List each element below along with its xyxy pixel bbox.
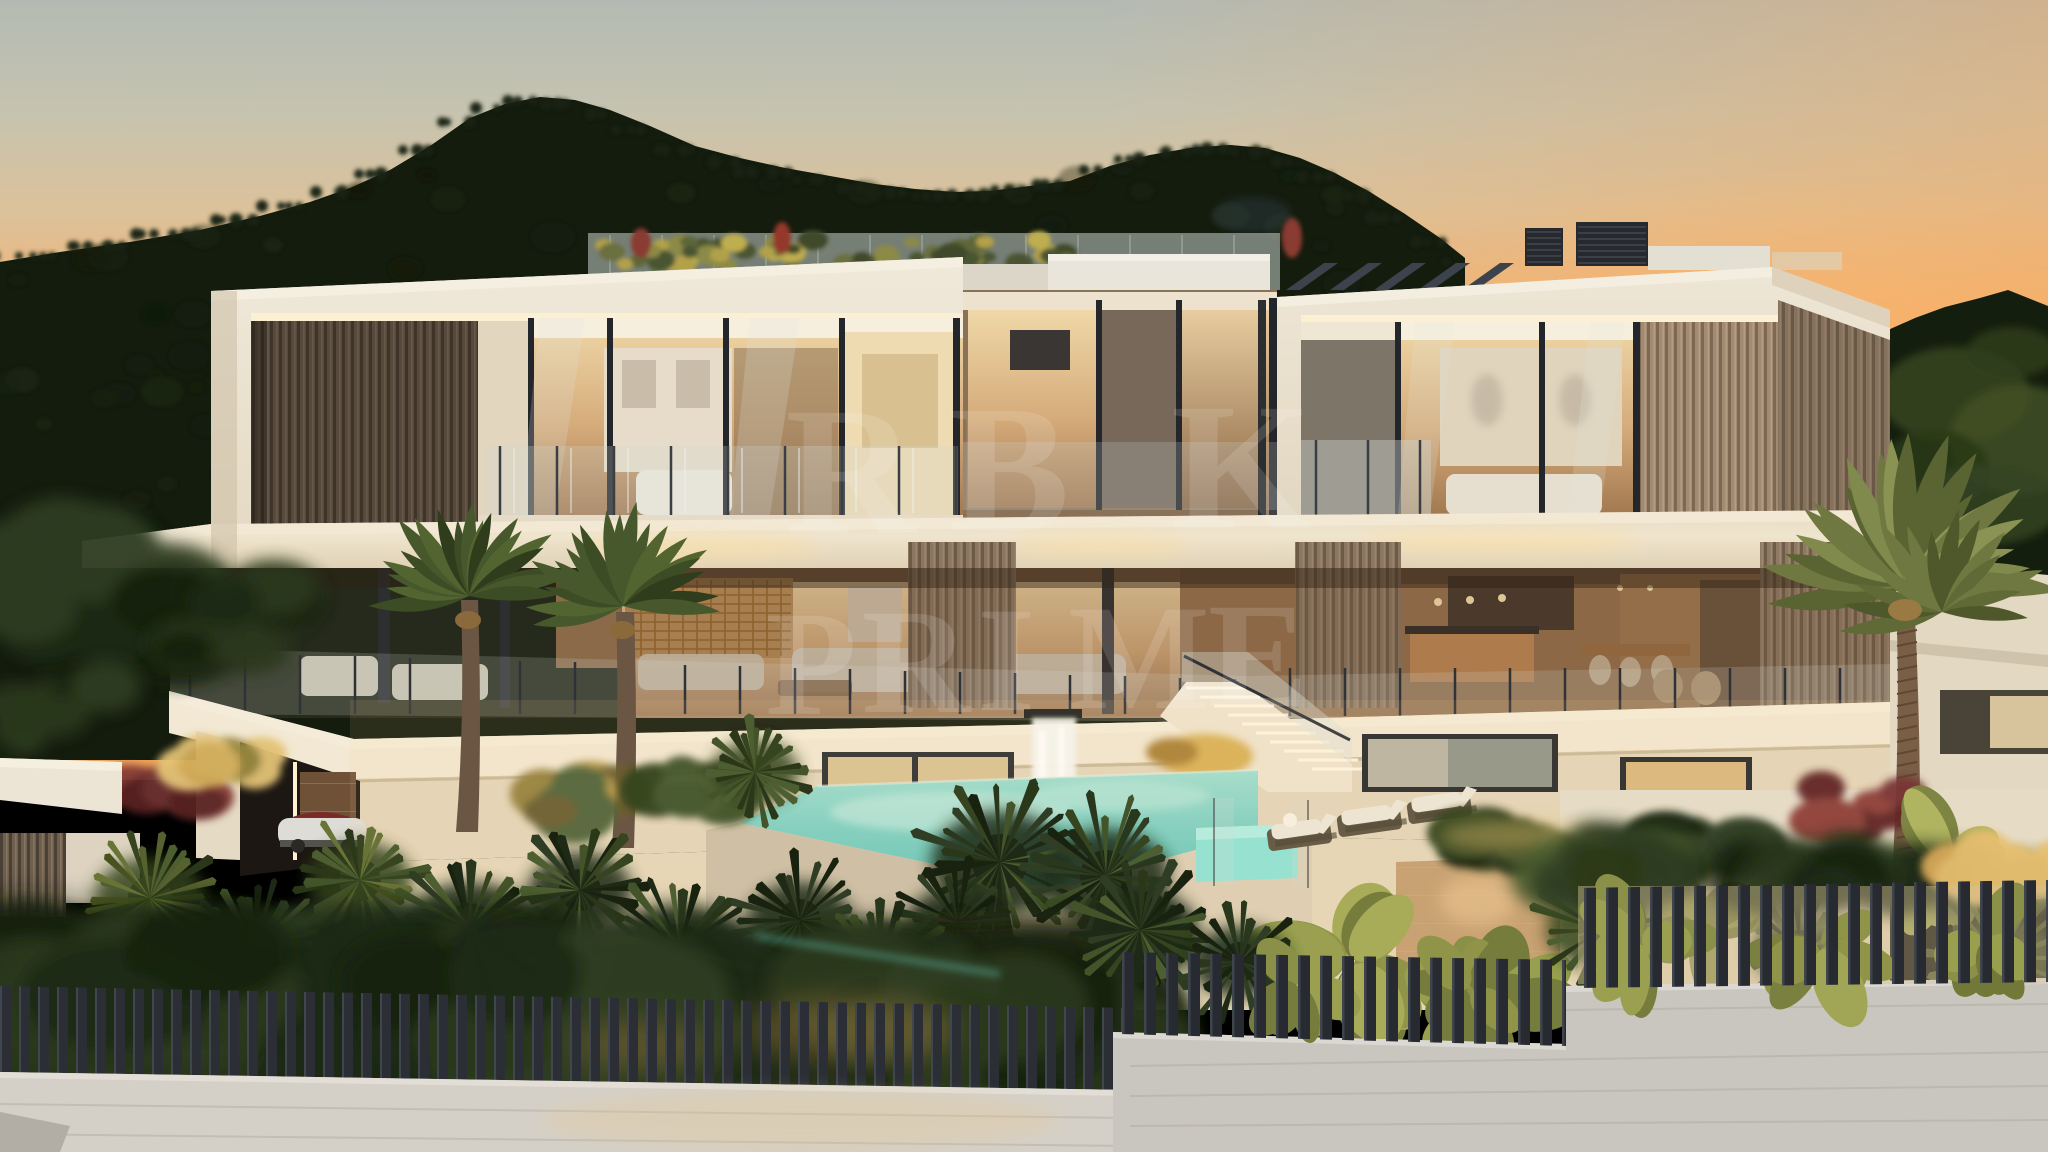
svg-text:P: P: [765, 581, 857, 747]
svg-text:R: R: [785, 371, 919, 572]
svg-text:M: M: [1068, 575, 1210, 741]
svg-text:I: I: [977, 577, 1035, 743]
svg-text:K: K: [1171, 367, 1313, 568]
svg-text:R: R: [862, 579, 972, 745]
svg-text:B: B: [948, 369, 1069, 570]
svg-text:E: E: [1208, 573, 1308, 739]
